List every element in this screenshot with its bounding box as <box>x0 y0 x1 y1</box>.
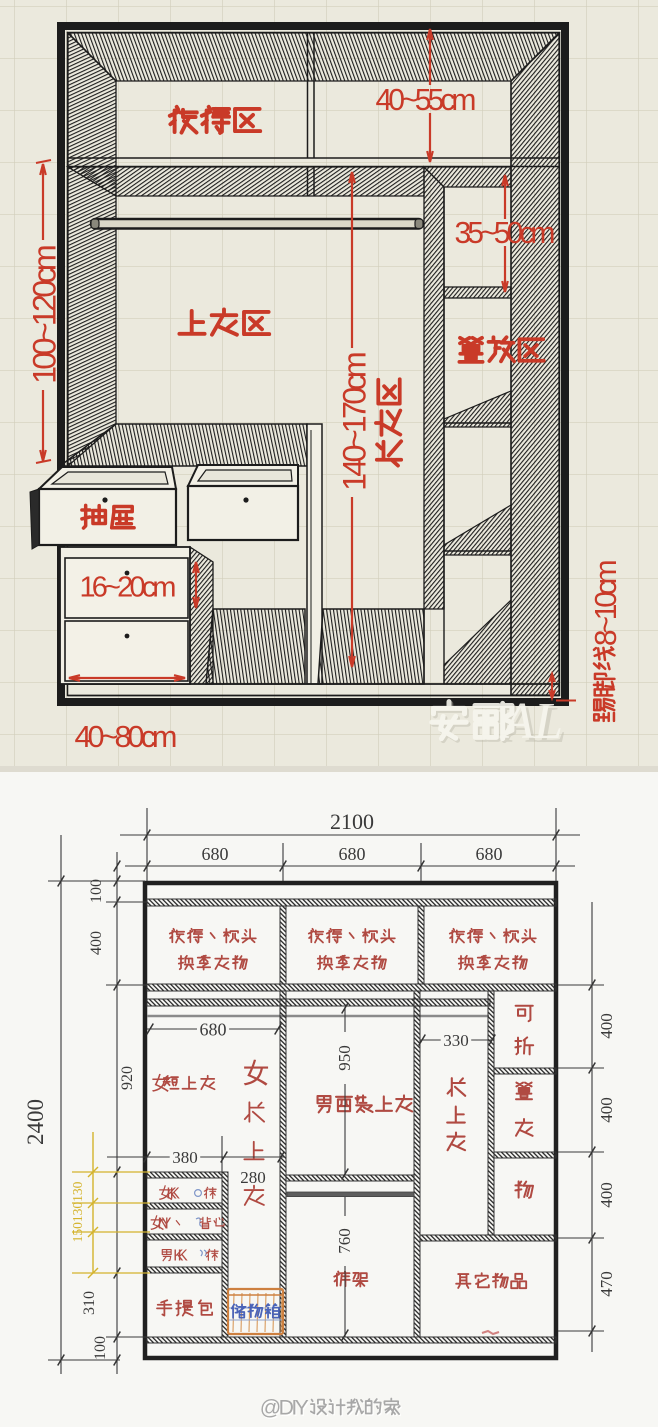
svg-text:680: 680 <box>476 844 503 864</box>
svg-text:150130130: 150130130 <box>70 1181 85 1242</box>
svg-text:400: 400 <box>597 1097 616 1123</box>
svg-text:40~80cm: 40~80cm <box>75 719 178 754</box>
svg-text:680: 680 <box>202 844 229 864</box>
svg-text:100: 100 <box>92 1336 109 1360</box>
svg-text:310: 310 <box>81 1291 98 1315</box>
svg-text:女NY: 女NY <box>150 1215 172 1233</box>
svg-text:470: 470 <box>597 1271 616 1297</box>
svg-text:400: 400 <box>88 931 105 955</box>
svg-text:@DIY: @DIY <box>260 1397 309 1420</box>
svg-text:400: 400 <box>597 1013 616 1039</box>
svg-text:40~55cm: 40~55cm <box>376 84 477 117</box>
svg-text:760: 760 <box>335 1228 354 1254</box>
svg-text:680: 680 <box>200 1020 227 1040</box>
svg-text:35~50cm: 35~50cm <box>455 217 556 250</box>
svg-text:女: 女 <box>243 1058 270 1089</box>
svg-text:680: 680 <box>339 844 366 864</box>
svg-text:100~120cm: 100~120cm <box>27 244 63 384</box>
svg-text:950: 950 <box>335 1045 354 1071</box>
svg-text:女KK: 女KK <box>158 1185 181 1203</box>
svg-text:400: 400 <box>597 1182 616 1208</box>
svg-text:140~170cm: 140~170cm <box>337 351 373 491</box>
svg-text:280: 280 <box>240 1168 266 1187</box>
svg-text:AL: AL <box>499 693 563 750</box>
svg-text:100: 100 <box>88 879 105 903</box>
svg-text:2100: 2100 <box>330 809 374 834</box>
svg-text:KK: KK <box>173 1248 188 1265</box>
svg-text:920: 920 <box>119 1066 136 1090</box>
svg-text:16~20cm: 16~20cm <box>80 571 177 603</box>
svg-text:380: 380 <box>172 1148 198 1167</box>
svg-text:8~10cm: 8~10cm <box>590 559 623 646</box>
svg-text:330: 330 <box>443 1031 469 1050</box>
svg-text:2400: 2400 <box>23 1099 48 1145</box>
